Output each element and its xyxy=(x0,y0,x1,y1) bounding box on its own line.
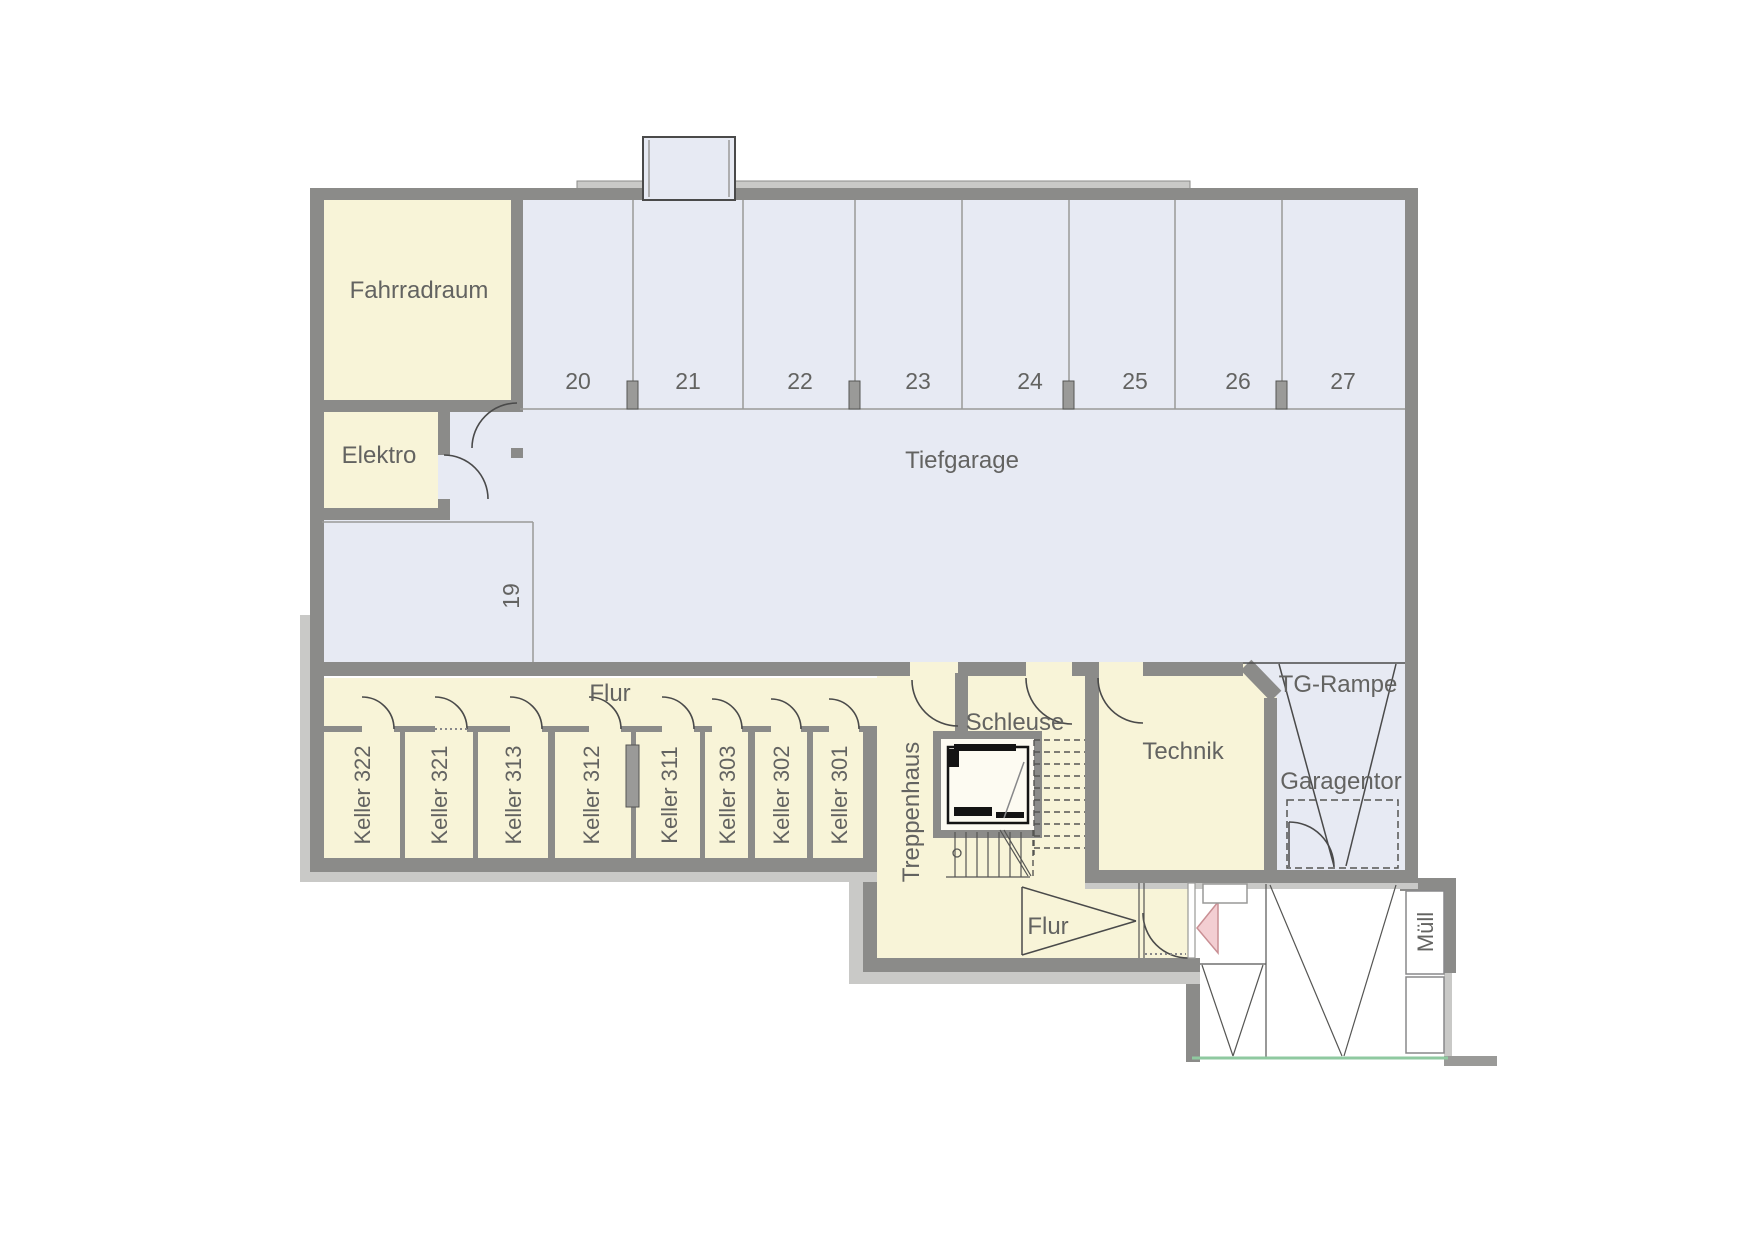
label-keller-313: Keller 313 xyxy=(501,745,526,844)
wall-top xyxy=(310,188,1418,200)
label-spot-27: 27 xyxy=(1330,368,1356,394)
label-keller-302: Keller 302 xyxy=(769,745,794,844)
wall-fahrradraum-door-stub xyxy=(511,448,523,458)
wall-elektro-door-stub xyxy=(438,499,450,508)
shell-left xyxy=(300,615,310,872)
shell-keller-bottom xyxy=(300,872,877,882)
label-spot-19: 19 xyxy=(498,583,524,609)
shell-under-stair-wall xyxy=(1085,883,1195,889)
floor-plan-drawing: Fahrradraum Elektro Tiefgarage Flur Schl… xyxy=(0,0,1754,1240)
wall-fahrradraum-right xyxy=(511,200,523,403)
label-keller-321: Keller 321 xyxy=(427,745,452,844)
label-schleuse: Schleuse xyxy=(966,709,1065,736)
label-keller-322: Keller 322 xyxy=(350,745,375,844)
wall-elektro-bottom xyxy=(324,508,450,520)
wall-muell-right xyxy=(1444,878,1456,973)
label-spot-22: 22 xyxy=(787,368,813,394)
shell-muell-foot xyxy=(1444,1056,1497,1066)
wall-right xyxy=(1405,188,1418,880)
floor-plan-page: Fahrradraum Elektro Tiefgarage Flur Schl… xyxy=(0,0,1754,1240)
light-well xyxy=(1203,884,1247,903)
label-muell: Müll xyxy=(1413,912,1438,952)
light-shaft xyxy=(643,137,735,200)
corridor-pillar xyxy=(626,745,639,807)
shell-flur-bottom xyxy=(849,972,1200,984)
label-flur-top: Flur xyxy=(589,680,630,707)
label-garagentor: Garagentor xyxy=(1280,768,1401,795)
label-keller-311: Keller 311 xyxy=(657,746,682,843)
label-keller-303: Keller 303 xyxy=(715,745,740,844)
label-spot-23: 23 xyxy=(905,368,931,394)
label-keller-301: Keller 301 xyxy=(827,745,852,844)
wall-garage-bottom-4 xyxy=(1143,662,1243,676)
wall-left xyxy=(310,188,324,872)
wall-technik-right xyxy=(1264,698,1277,870)
label-spot-26: 26 xyxy=(1225,368,1251,394)
label-spot-21: 21 xyxy=(675,368,701,394)
wall-elektro-right xyxy=(438,412,450,455)
shell-muell-right xyxy=(1444,973,1452,1058)
label-treppenhaus: Treppenhaus xyxy=(898,742,925,883)
label-technik: Technik xyxy=(1142,738,1224,765)
label-tg-rampe: TG-Rampe xyxy=(1279,671,1398,698)
elevator-icon xyxy=(933,731,1042,838)
label-keller-312: Keller 312 xyxy=(579,745,604,844)
label-spot-24: 24 xyxy=(1017,368,1043,394)
exterior-door-frame xyxy=(1188,883,1195,958)
label-fahrradraum: Fahrradraum xyxy=(350,277,489,304)
wall-flur-bottom xyxy=(863,958,1200,972)
label-spot-25: 25 xyxy=(1122,368,1148,394)
wall-keller-bottom xyxy=(310,858,877,872)
label-tiefgarage: Tiefgarage xyxy=(905,447,1019,474)
label-flur-bottom: Flur xyxy=(1027,913,1068,940)
wall-treppenhaus-left xyxy=(863,726,877,972)
wall-garage-bottom-2 xyxy=(958,662,1026,676)
label-spot-20: 20 xyxy=(565,368,591,394)
shell-flur-left xyxy=(849,872,863,984)
wall-garage-bottom-1 xyxy=(310,662,910,676)
wall-technik-left xyxy=(1085,662,1099,870)
room-technik xyxy=(1097,662,1277,870)
wall-stair-section-bottom xyxy=(1085,870,1418,883)
label-elektro: Elektro xyxy=(342,442,417,469)
